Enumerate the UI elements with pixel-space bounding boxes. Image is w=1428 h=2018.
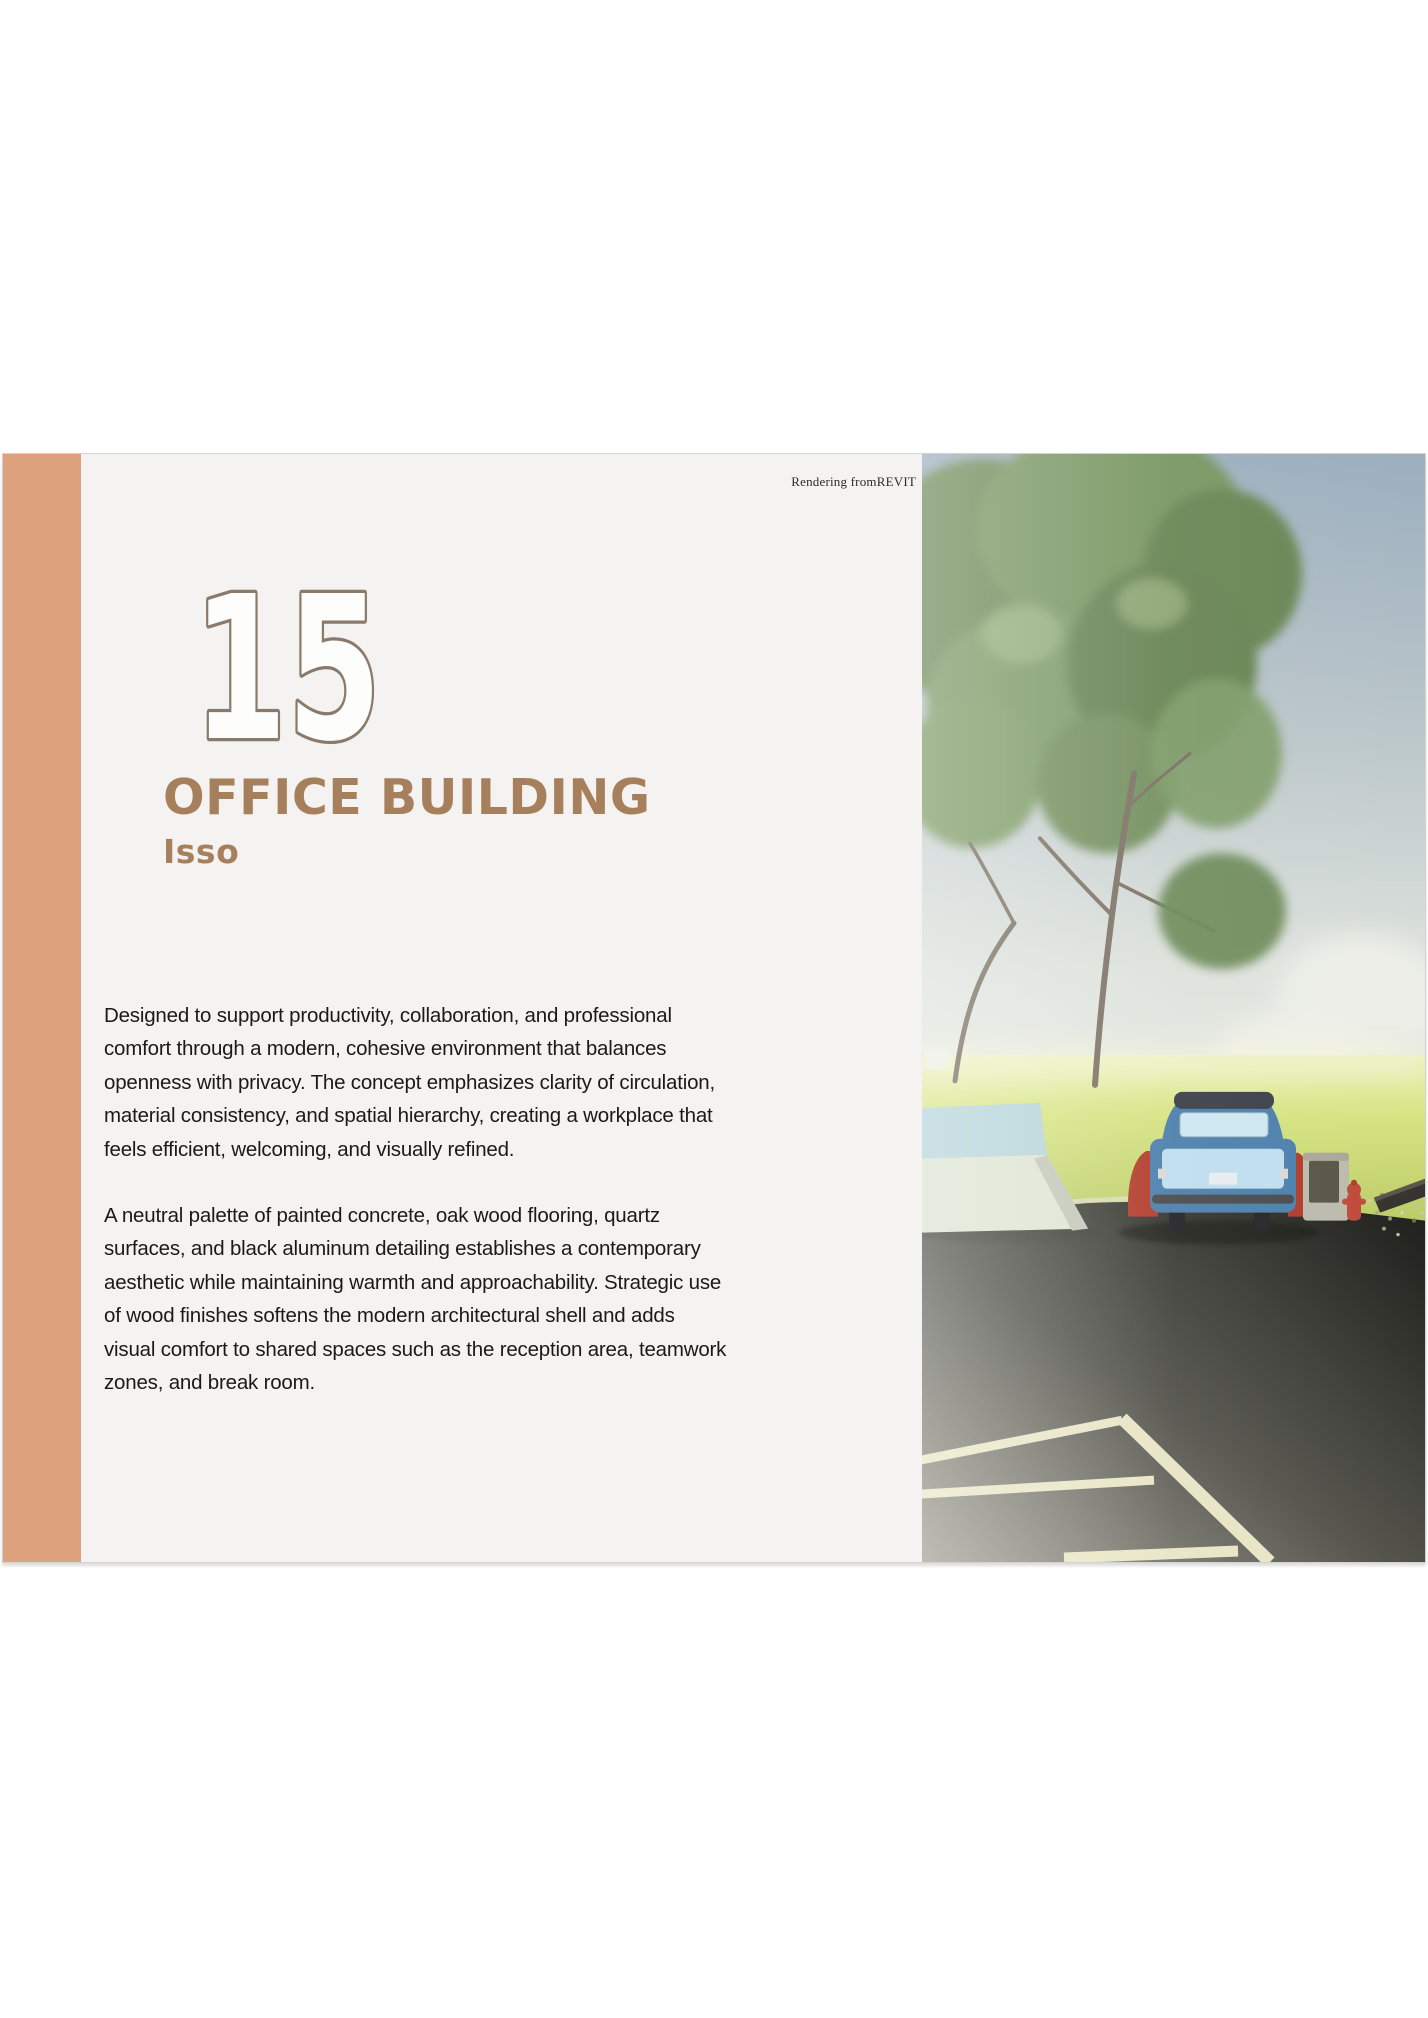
page-subtitle: Isso (163, 834, 239, 870)
body-copy: Designed to support productivity, collab… (104, 999, 728, 1399)
page-root: { "page": { "background": "#ffffff" }, "… (0, 0, 1428, 2018)
body-paragraph-2: A neutral palette of painted concrete, o… (104, 1199, 728, 1399)
body-paragraph-1: Designed to support productivity, collab… (104, 999, 728, 1166)
haze-overlay (922, 454, 1425, 1562)
accent-bar (3, 454, 81, 1562)
chapter-number: 15 (191, 592, 411, 752)
page-title: OFFICE BUILDING (163, 772, 651, 824)
credit-label: Rendering fromREVIT (791, 474, 916, 490)
chapter-number-text: 15 (193, 554, 381, 786)
rendering-image (922, 454, 1425, 1562)
slide: Rendering fromREVIT 15 OFFICE BUILDING I… (2, 453, 1426, 1563)
